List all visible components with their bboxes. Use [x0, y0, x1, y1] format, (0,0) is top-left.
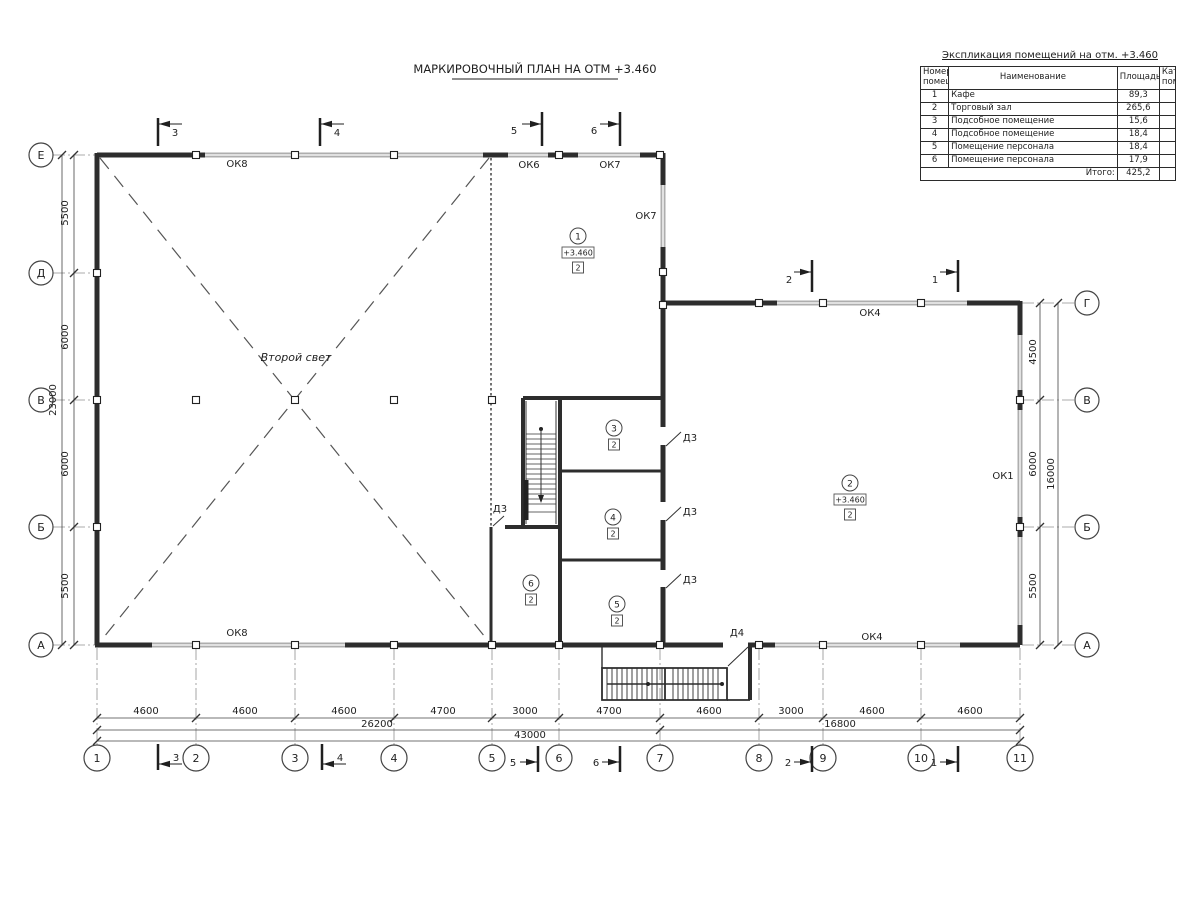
dim-total: 16000: [1046, 458, 1057, 490]
second-light-label: Второй свет: [261, 351, 332, 364]
external-stair: [602, 645, 750, 700]
window-label: ОК7: [635, 211, 656, 222]
dim-label: 3000: [778, 706, 803, 717]
interior-walls: [491, 398, 663, 645]
room-num-cell: 1: [921, 90, 949, 103]
table-row: 3 Подсобное помещение 15,6: [921, 116, 1176, 129]
axis-col-label: 1: [94, 752, 101, 765]
dim-label: 4600: [957, 706, 982, 717]
section-mark: 4: [337, 753, 343, 764]
room-type-mark: 2: [610, 530, 615, 539]
dim-total: 43000: [514, 730, 546, 741]
room-num-cell: 3: [921, 116, 949, 129]
door-label: Д3: [493, 504, 507, 515]
room-marker-2: 2 +3.460 2: [834, 475, 866, 520]
total-cat-cell: [1159, 168, 1175, 181]
axis-col-label: 7: [657, 752, 664, 765]
table-row: 1 Кафе 89,3: [921, 90, 1176, 103]
grid-axis-lines: [53, 155, 1075, 745]
axis-col-label: 3: [292, 752, 299, 765]
section-mark: 2: [785, 758, 791, 769]
room-type-mark: 2: [575, 264, 580, 273]
axis-col-label: 2: [193, 752, 200, 765]
section-mark: 6: [591, 126, 597, 137]
room-type-mark: 2: [847, 511, 852, 520]
dim-subtotal: 26200: [361, 719, 393, 730]
room-type-mark: 2: [614, 617, 619, 626]
room-type-mark: 2: [611, 441, 616, 450]
total-value-cell: 425,2: [1117, 168, 1159, 181]
room-marker-6: 6 2: [523, 575, 539, 605]
room-num-cell: 2: [921, 103, 949, 116]
explication-table: Номер помещ. Наименование Площадь Кат. п…: [920, 66, 1176, 181]
section-mark: 2: [786, 275, 792, 286]
room-name-cell: Кафе: [949, 90, 1118, 103]
col-header-name: Наименование: [949, 67, 1118, 90]
dim-subtotal: 16800: [824, 719, 856, 730]
room-elevation: +3.460: [563, 249, 593, 258]
room-num-cell: 5: [921, 142, 949, 155]
room-cat-cell: [1159, 103, 1175, 116]
opening-labels: ОК8 ОК6 ОК7 ОК7 ОК4 ОК1 ОК8 ОК4 Д3 Д3 Д3…: [226, 159, 1013, 643]
dim-label: 6000: [60, 324, 71, 349]
door-label: Д3: [683, 575, 697, 586]
room-name-cell: Помещение персонала: [949, 155, 1118, 168]
room-number: 2: [847, 480, 853, 490]
room-area-cell: 18,4: [1117, 142, 1159, 155]
room-number: 5: [614, 601, 620, 611]
room-markers: 1 +3.460 2 2 +3.460 2 3 2 4 2: [523, 228, 866, 626]
window-label: ОК1: [992, 471, 1013, 482]
axis-row-label: Г: [1084, 297, 1091, 310]
dim-label: 4600: [331, 706, 356, 717]
room-cat-cell: [1159, 90, 1175, 103]
section-mark: 3: [173, 753, 179, 764]
section-mark: 5: [510, 758, 516, 769]
room-marker-5: 5 2: [609, 596, 625, 626]
axis-col-label: 6: [556, 752, 563, 765]
dim-label: 5500: [60, 200, 71, 225]
dim-label: 4600: [696, 706, 721, 717]
room-number: 3: [611, 425, 617, 435]
room-marker-4: 4 2: [605, 509, 621, 539]
axis-row-label: Б: [37, 521, 45, 534]
axis-row-label: В: [1083, 394, 1091, 407]
axis-row-label: Е: [38, 149, 45, 162]
section-mark: 4: [334, 128, 340, 139]
room-area-cell: 18,4: [1117, 129, 1159, 142]
col-header-area: Площадь: [1117, 67, 1159, 90]
room-area-cell: 265,6: [1117, 103, 1159, 116]
total-label-cell: Итого:: [921, 168, 1118, 181]
room-cat-cell: [1159, 155, 1175, 168]
room-explication: Экспликация помещений на отм. +3.460 Ном…: [920, 50, 1180, 181]
room-num-cell: 4: [921, 129, 949, 142]
room-area-cell: 15,6: [1117, 116, 1159, 129]
dim-label: 4600: [133, 706, 158, 717]
table-total-row: Итого: 425,2: [921, 168, 1176, 181]
section-mark: 3: [172, 128, 178, 139]
axis-col-label: 9: [820, 752, 827, 765]
table-row: 6 Помещение персонала 17,9: [921, 155, 1176, 168]
axis-row-label: Б: [1083, 521, 1091, 534]
room-area-cell: 89,3: [1117, 90, 1159, 103]
door-label: Д3: [683, 433, 697, 444]
room-number: 6: [528, 580, 534, 590]
room-cat-cell: [1159, 142, 1175, 155]
dim-label: 5500: [1028, 573, 1039, 598]
axis-col-label: 5: [489, 752, 496, 765]
room-type-mark: 2: [528, 596, 533, 605]
axis-labels-left: Е Д В Б А: [37, 149, 46, 652]
drawing-sheet: 1 2 3 4 5 6 7 8 9 10 11 Е Д В Б А Г В Б …: [0, 0, 1200, 900]
table-row: 4 Подсобное помещение 18,4: [921, 129, 1176, 142]
axis-row-label: В: [37, 394, 45, 407]
room-name-cell: Подсобное помещение: [949, 129, 1118, 142]
axis-col-label: 11: [1013, 752, 1027, 765]
table-row: 2 Торговый зал 265,6: [921, 103, 1176, 116]
section-mark: 1: [931, 758, 937, 769]
dim-label: 4700: [430, 706, 455, 717]
col-header-number: Номер помещ.: [921, 67, 949, 90]
dim-label: 3000: [512, 706, 537, 717]
dim-label: 5500: [60, 573, 71, 598]
section-mark: 6: [593, 758, 599, 769]
room-area-cell: 17,9: [1117, 155, 1159, 168]
axis-row-label: Д: [37, 267, 46, 280]
dim-label: 4600: [859, 706, 884, 717]
window-label: ОК6: [518, 160, 539, 171]
door-label: Д4: [730, 628, 744, 639]
room-elevation: +3.460: [835, 496, 865, 505]
axis-labels-right: Г В Б А: [1083, 297, 1091, 652]
window-label: ОК8: [226, 159, 247, 170]
room-cat-cell: [1159, 129, 1175, 142]
room-name-cell: Подсобное помещение: [949, 116, 1118, 129]
axis-row-label: А: [1083, 639, 1091, 652]
room-cat-cell: [1159, 116, 1175, 129]
window-label: ОК8: [226, 628, 247, 639]
room-name-cell: Торговый зал: [949, 103, 1118, 116]
dimension-labels: 4600 4600 4600 4700 3000 4700 4600 3000 …: [48, 200, 1057, 741]
room-name-cell: Помещение персонала: [949, 142, 1118, 155]
window-label: ОК4: [859, 308, 880, 319]
room-number: 1: [575, 233, 581, 243]
dim-label: 6000: [60, 451, 71, 476]
room-number: 4: [610, 514, 616, 524]
dim-label: 4600: [232, 706, 257, 717]
room-num-cell: 6: [921, 155, 949, 168]
explication-title: Экспликация помещений на отм. +3.460: [920, 50, 1180, 61]
dim-label: 4700: [596, 706, 621, 717]
dim-label: 4500: [1028, 339, 1039, 364]
axis-col-label: 4: [391, 752, 398, 765]
axis-col-label: 10: [914, 752, 928, 765]
dim-total: 23000: [48, 384, 59, 416]
window-label: ОК7: [599, 160, 620, 171]
door-label: Д3: [683, 507, 697, 518]
window-label: ОК4: [861, 632, 882, 643]
room-marker-3: 3 2: [606, 420, 622, 450]
axis-col-label: 8: [756, 752, 763, 765]
axis-bubbles-right: [1075, 291, 1099, 657]
section-mark: 1: [932, 275, 938, 286]
plan-title: МАРКИРОВОЧНЫЙ ПЛАН НА ОТМ +3.460: [413, 61, 656, 76]
table-row: 5 Помещение персонала 18,4: [921, 142, 1176, 155]
room-marker-1: 1 +3.460 2: [562, 228, 594, 273]
axis-labels-bottom: 1 2 3 4 5 6 7 8 9 10 11: [94, 752, 1028, 765]
dim-label: 6000: [1028, 451, 1039, 476]
col-header-category: Кат. пом.: [1159, 67, 1175, 90]
section-mark: 5: [511, 126, 517, 137]
axis-row-label: А: [37, 639, 45, 652]
internal-stair: [524, 401, 557, 524]
